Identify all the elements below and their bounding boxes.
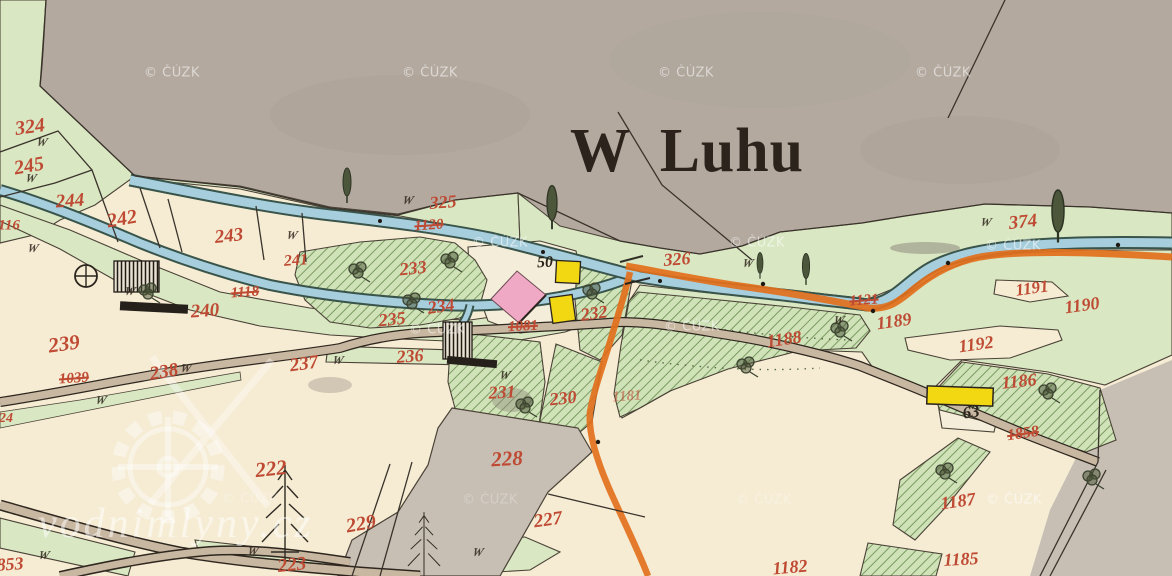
- yellow-building: [555, 260, 580, 283]
- yellow-building: [549, 294, 575, 323]
- map-drawing: [0, 0, 1172, 576]
- yellow-building: [927, 386, 994, 406]
- mill-building: [443, 322, 472, 359]
- historical-cadastral-map-viewport[interactable]: W Luhu vodnimlyny.cz 3242452442422432411…: [0, 0, 1172, 576]
